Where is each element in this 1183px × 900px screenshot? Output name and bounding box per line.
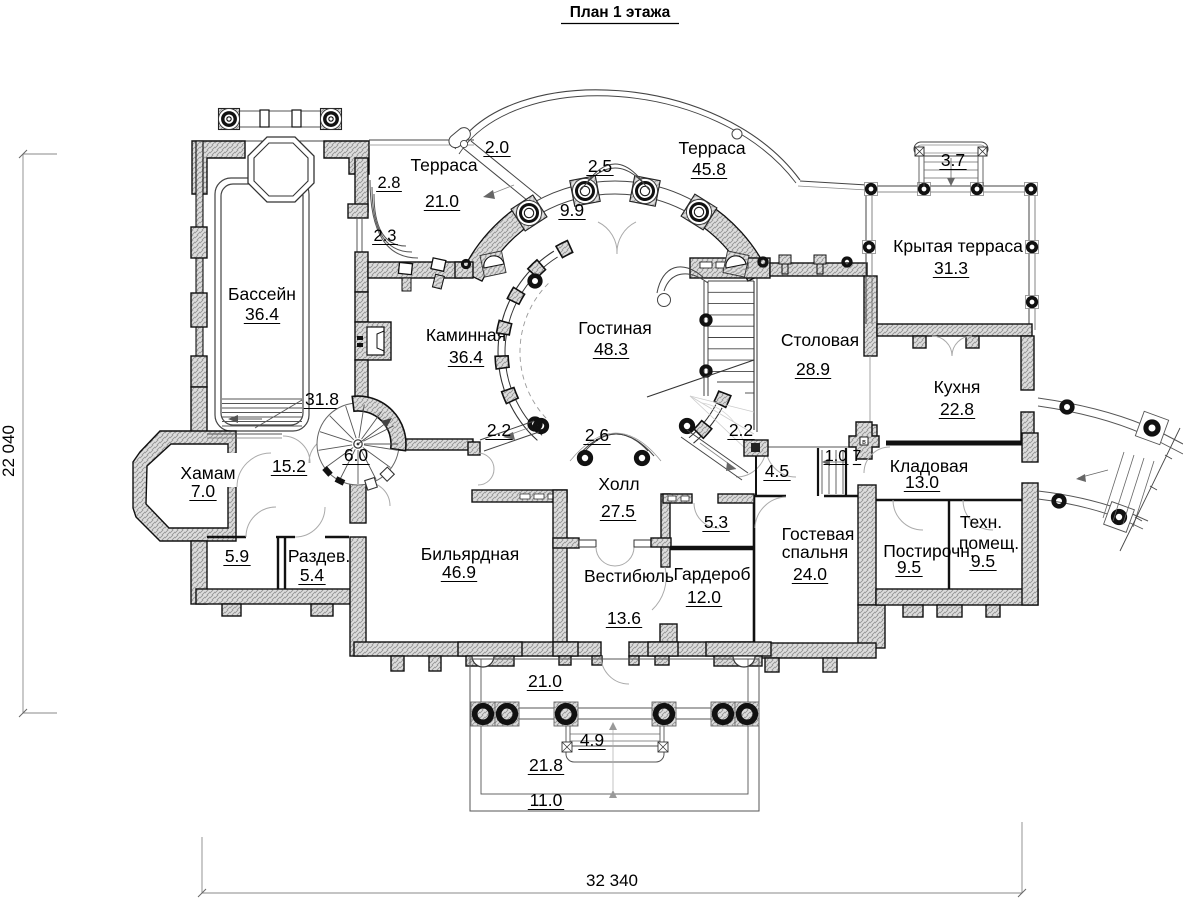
svg-text:2.0: 2.0 <box>485 137 510 157</box>
svg-text:12.0: 12.0 <box>687 587 721 607</box>
svg-text:48.3: 48.3 <box>594 339 628 359</box>
svg-text:6.0: 6.0 <box>344 445 369 465</box>
svg-text:21.8: 21.8 <box>529 755 563 775</box>
svg-text:4.9: 4.9 <box>580 730 604 750</box>
svg-text:Крытая терраса: Крытая терраса <box>893 236 1023 256</box>
svg-text:спальня: спальня <box>782 542 848 562</box>
svg-text:Терраса: Терраса <box>410 155 477 175</box>
svg-text:Гостевая: Гостевая <box>782 524 855 544</box>
svg-text:27.5: 27.5 <box>601 501 635 521</box>
svg-text:Бассейн: Бассейн <box>228 284 296 304</box>
svg-text:Каминная: Каминная <box>426 325 506 345</box>
svg-text:11.0: 11.0 <box>530 790 563 810</box>
svg-text:13.6: 13.6 <box>607 608 641 628</box>
svg-text:Кухня: Кухня <box>934 377 981 397</box>
svg-text:План 1 этажа: План 1 этажа <box>570 4 671 21</box>
svg-text:7.0: 7.0 <box>191 481 216 501</box>
svg-text:2.8: 2.8 <box>378 174 401 192</box>
svg-text:28.9: 28.9 <box>796 359 830 379</box>
svg-text:9.5: 9.5 <box>897 557 921 577</box>
svg-text:31.3: 31.3 <box>934 258 968 278</box>
svg-text:5.4: 5.4 <box>300 565 325 585</box>
svg-text:21.0: 21.0 <box>528 671 562 691</box>
svg-text:Раздев.: Раздев. <box>288 546 350 566</box>
svg-text:22.8: 22.8 <box>940 399 974 419</box>
svg-text:Гардероб: Гардероб <box>674 564 751 584</box>
svg-text:13.0: 13.0 <box>905 472 939 492</box>
svg-text:5.9: 5.9 <box>225 546 249 566</box>
svg-text:1.0: 1.0 <box>825 448 847 465</box>
svg-text:21.0: 21.0 <box>425 191 459 211</box>
svg-text:3.7: 3.7 <box>941 150 965 170</box>
svg-text:31.8: 31.8 <box>305 389 339 409</box>
svg-text:Столовая: Столовая <box>781 330 859 350</box>
svg-text:Техн.: Техн. <box>960 512 1002 532</box>
svg-text:2.2: 2.2 <box>487 420 511 440</box>
svg-text:36.4: 36.4 <box>245 304 279 324</box>
svg-text:9.9: 9.9 <box>560 200 584 220</box>
svg-text:Вестибюль: Вестибюль <box>584 566 674 586</box>
svg-text:4.5: 4.5 <box>765 461 789 481</box>
svg-text:45.8: 45.8 <box>692 159 726 179</box>
svg-text:46.9: 46.9 <box>442 562 476 582</box>
svg-text:15.2: 15.2 <box>272 456 306 476</box>
svg-text:7: 7 <box>853 448 862 465</box>
svg-text:2.6: 2.6 <box>585 425 609 445</box>
svg-text:36.4: 36.4 <box>449 347 483 367</box>
svg-text:2.2: 2.2 <box>729 420 753 440</box>
svg-text:Хамам: Хамам <box>180 463 235 483</box>
svg-text:в: в <box>862 439 866 446</box>
svg-text:2.5: 2.5 <box>588 156 612 176</box>
svg-text:5.3: 5.3 <box>704 512 728 532</box>
svg-text:Терраса: Терраса <box>678 138 745 158</box>
svg-text:Холл: Холл <box>598 474 639 494</box>
svg-text:2.3: 2.3 <box>374 227 397 245</box>
svg-text:помещ.: помещ. <box>959 533 1019 553</box>
svg-text:Гостиная: Гостиная <box>578 318 651 338</box>
svg-text:Бильярдная: Бильярдная <box>421 544 519 564</box>
svg-text:32 340: 32 340 <box>586 871 638 890</box>
svg-text:9.5: 9.5 <box>971 551 995 571</box>
svg-text:22 040: 22 040 <box>0 425 18 477</box>
svg-text:24.0: 24.0 <box>793 564 827 584</box>
